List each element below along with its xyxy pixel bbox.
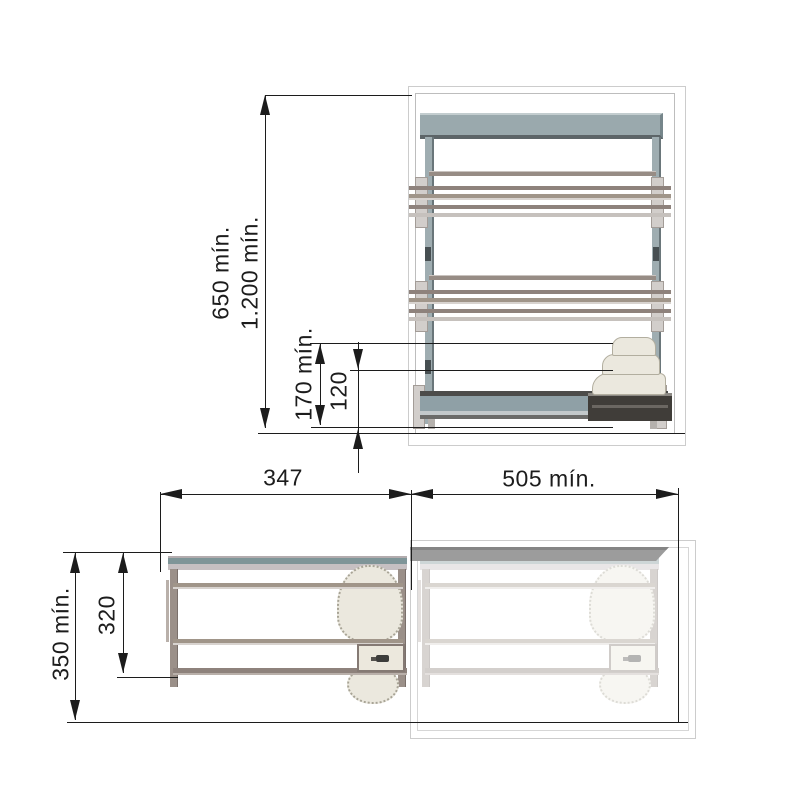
- arrowhead-down: [353, 349, 363, 369]
- pullout-unit-plan-view: [165, 556, 411, 706]
- dim-label-shoe-clearance: 170 mín.: [291, 327, 318, 421]
- shelf-top-rail: [429, 275, 656, 280]
- extension-line: [678, 488, 679, 722]
- elevation-top-panel: [420, 113, 663, 139]
- shelf-right-bracket: [651, 281, 664, 332]
- shelf-rail: [409, 205, 671, 209]
- extension-line: [258, 433, 685, 434]
- wire-shelf-middle: [408, 275, 676, 337]
- extension-line: [67, 722, 688, 723]
- shelf-rail: [409, 298, 671, 304]
- arrowhead-up: [70, 553, 80, 573]
- shelf-rail: [409, 290, 671, 294]
- shoe-holder-detail: [592, 405, 668, 408]
- dim-label-cabinet-depth: 350 mín.: [48, 587, 75, 681]
- shelf-top-rail: [429, 171, 656, 176]
- arrowhead-left: [411, 489, 433, 499]
- dim-label-cabinet-height: 650 mín.: [208, 226, 235, 320]
- arrowhead-up: [118, 553, 128, 573]
- shoe-holder-side-view: [588, 393, 672, 421]
- shelf-rail: [409, 309, 671, 313]
- dim-label-rack-height: 120: [326, 371, 353, 411]
- shoe-holder-top-view: [357, 644, 405, 672]
- shelf-left-bracket: [415, 177, 428, 228]
- shoe-top-view-toe: [589, 565, 655, 643]
- arrowhead-right: [656, 489, 678, 499]
- cabinet-top-rail-plan: [410, 547, 669, 561]
- dim-label-unit-depth: 320: [94, 595, 121, 635]
- shoe-side-view: [612, 337, 656, 356]
- dim-label-column-height: 1.200 mín.: [237, 216, 264, 330]
- arrowhead-up: [353, 429, 363, 449]
- arrowhead-down: [260, 408, 270, 428]
- extension-line: [411, 490, 412, 590]
- shelf-rail: [409, 186, 671, 190]
- shoe-top-view-toe: [337, 565, 403, 643]
- arrowhead-left: [160, 489, 182, 499]
- arrowhead-down: [118, 653, 128, 673]
- dimension-line: [75, 553, 76, 720]
- arrowhead-right: [389, 489, 411, 499]
- arrowhead-down: [70, 700, 80, 720]
- unit-rail: [425, 583, 655, 589]
- ghost-unit-plan-view: [417, 556, 663, 706]
- wire-shelf-upper: [408, 171, 676, 233]
- shelf-left-bracket: [415, 281, 428, 332]
- unit-rail: [173, 583, 403, 589]
- dim-label-unit-width: 347: [263, 465, 303, 492]
- shelf-rail: [409, 194, 671, 200]
- post-connector-notch: [425, 247, 431, 261]
- extension-line: [310, 343, 613, 344]
- post-connector-notch: [425, 360, 431, 374]
- shelf-right-bracket: [651, 177, 664, 228]
- release-clip-icon: [628, 655, 641, 662]
- extension-line: [160, 492, 161, 572]
- dim-label-cabinet-width: 505 mín.: [502, 466, 596, 493]
- release-clip-icon: [376, 655, 389, 662]
- dimension-diagram: 650 mín. 1.200 mín. 170 mín. 120: [0, 0, 800, 800]
- extension-line: [63, 552, 172, 553]
- unit-side-bracket: [166, 580, 169, 642]
- shoe-side-view: [592, 373, 666, 395]
- arrowhead-up: [260, 95, 270, 115]
- unit-side-bracket: [418, 580, 421, 642]
- extension-line: [350, 370, 613, 371]
- dimension-line: [265, 95, 266, 428]
- shoe-holder-top-view: [609, 644, 657, 672]
- extension-line: [311, 427, 613, 428]
- shelf-rail: [409, 317, 671, 321]
- shelf-rail: [409, 213, 671, 217]
- shoe-side-view: [602, 354, 660, 375]
- release-clip-icon: [371, 657, 376, 661]
- release-clip-icon: [623, 657, 628, 661]
- post-connector-notch: [653, 247, 659, 261]
- extension-line: [117, 677, 178, 678]
- extension-line: [265, 95, 412, 96]
